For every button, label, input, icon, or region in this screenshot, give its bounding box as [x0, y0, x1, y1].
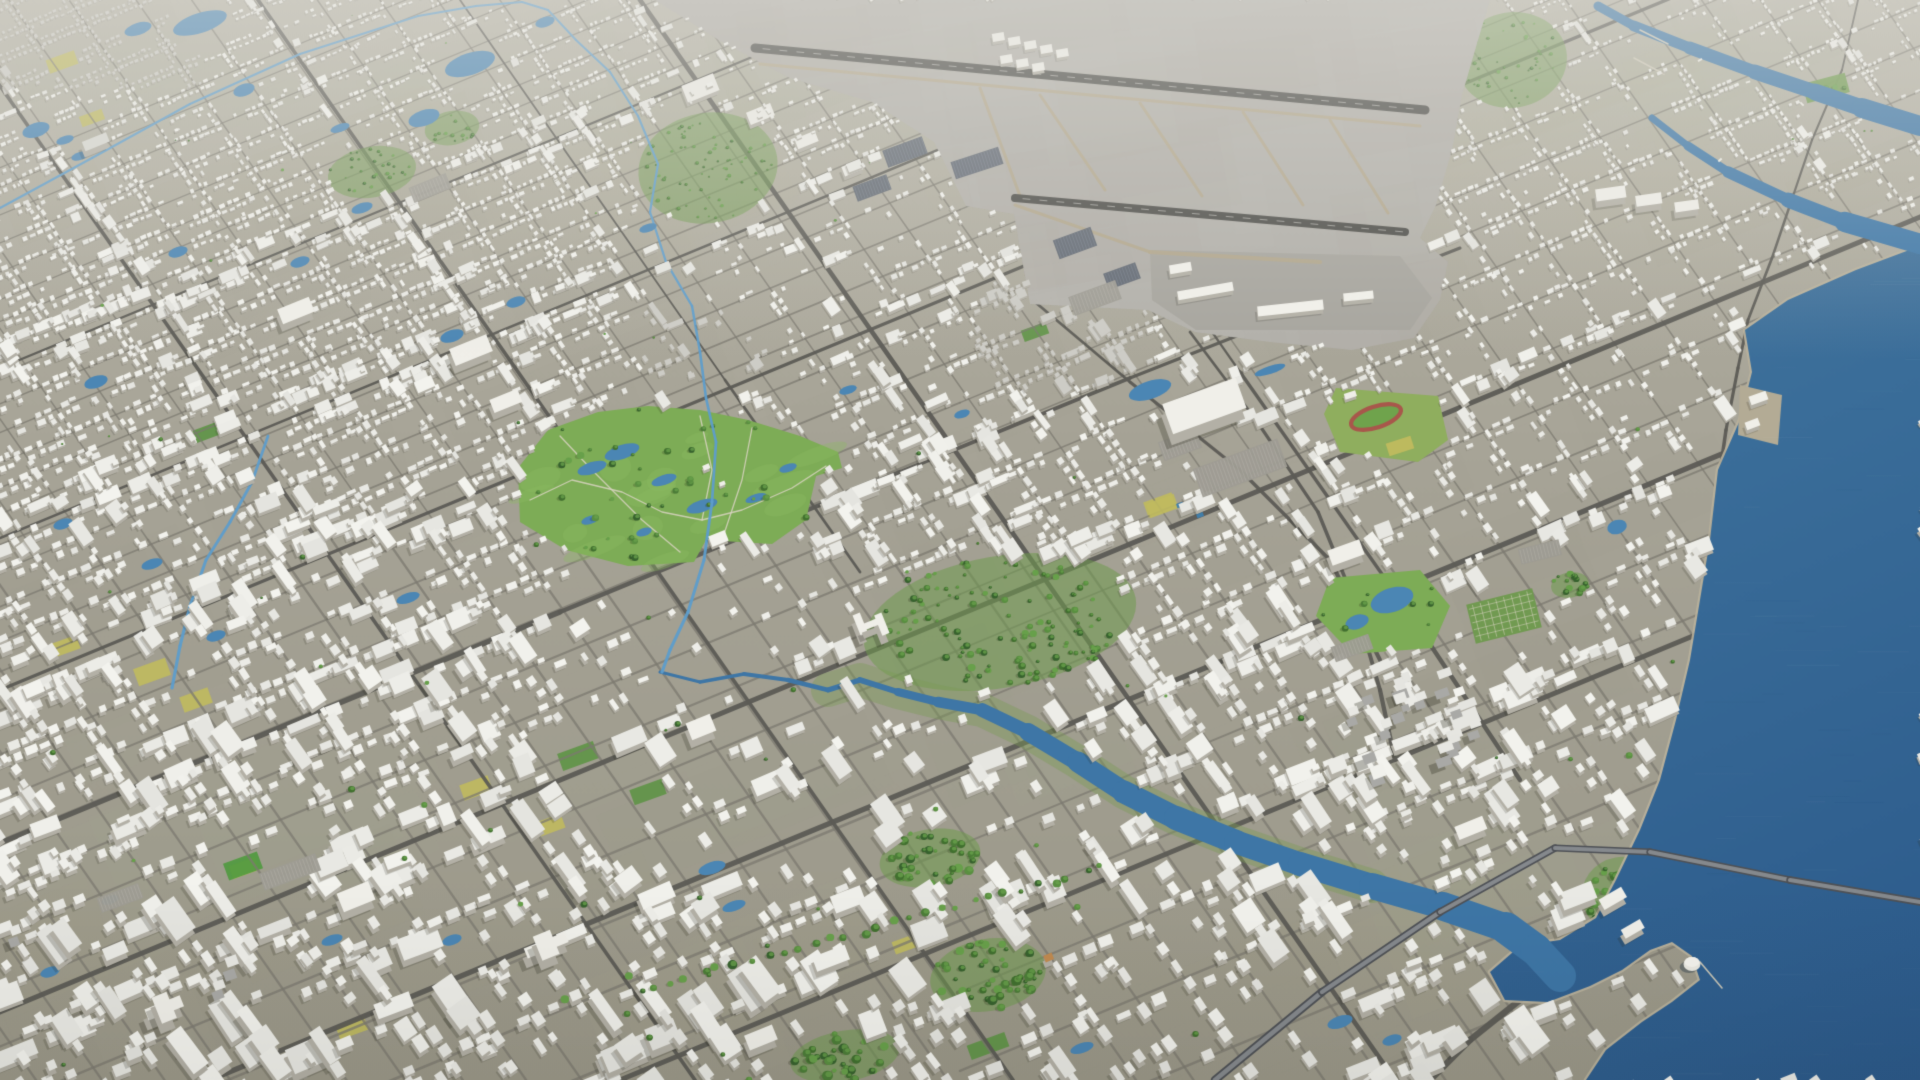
city-3d-render: Aerial 3D render of a coastal city model…	[0, 0, 1920, 1080]
city-render-canvas	[0, 0, 1920, 1080]
